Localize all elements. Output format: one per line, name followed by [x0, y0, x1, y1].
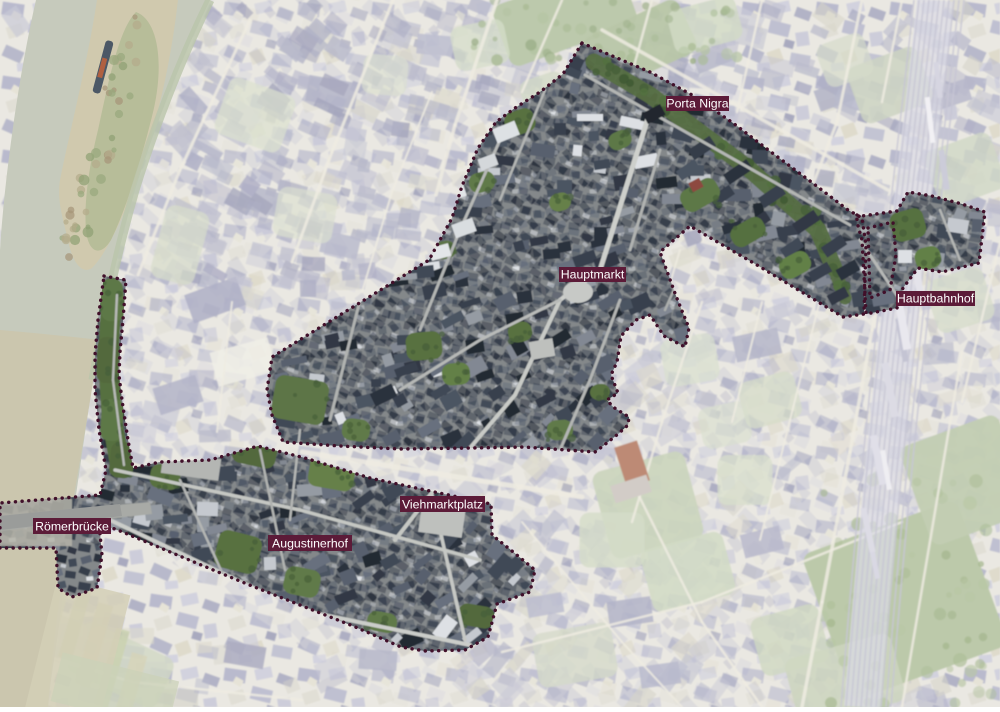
svg-text:Augustinerhof: Augustinerhof — [272, 537, 348, 551]
svg-text:Viehmarktplatz: Viehmarktplatz — [402, 498, 483, 512]
svg-text:Hauptmarkt: Hauptmarkt — [561, 268, 625, 282]
svg-text:Porta Nigra: Porta Nigra — [666, 97, 728, 111]
svg-text:Hauptbahnhof: Hauptbahnhof — [897, 292, 975, 306]
svg-text:Römerbrücke: Römerbrücke — [35, 520, 109, 534]
